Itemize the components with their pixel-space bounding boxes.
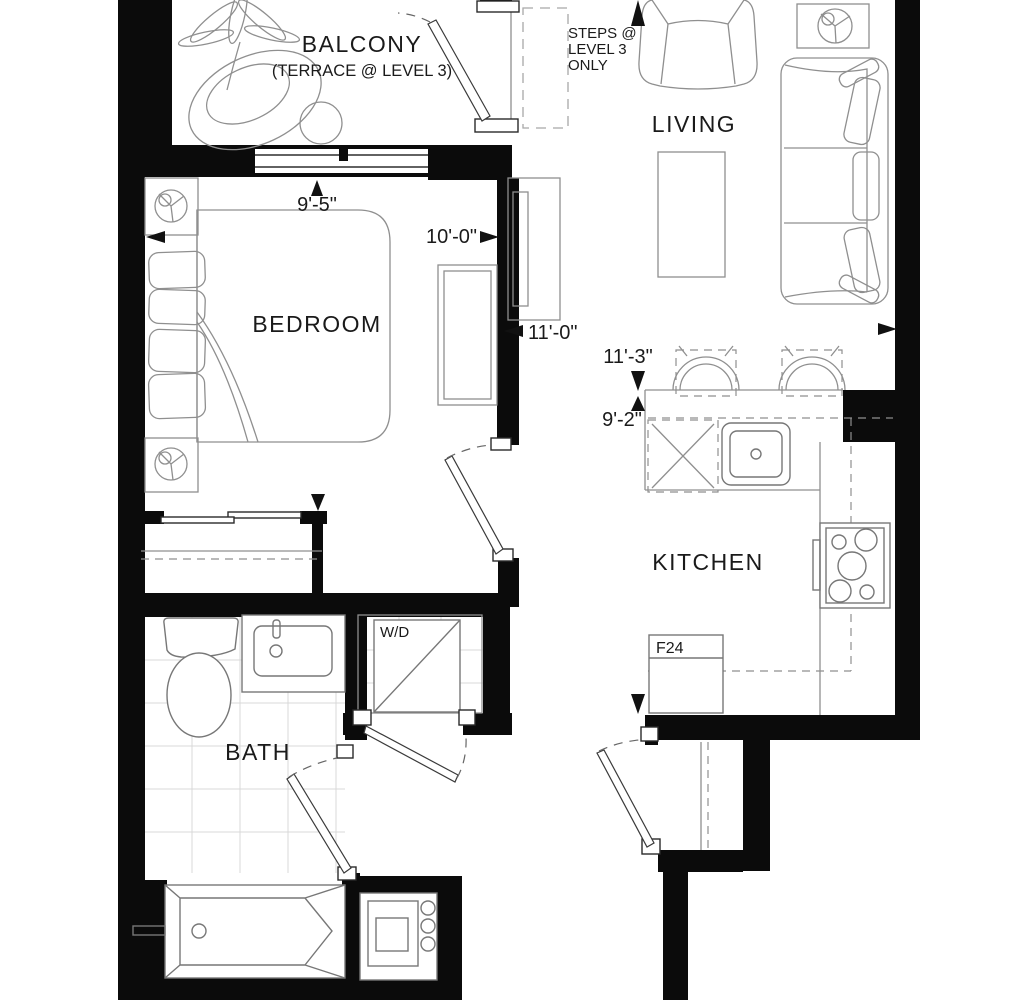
steps-outline — [523, 8, 568, 128]
dresser — [438, 265, 497, 405]
toilet — [164, 618, 238, 737]
balcony-label: BALCONY — [302, 31, 422, 57]
bar-stool-1 — [673, 346, 739, 396]
fridge-label: F24 — [656, 640, 684, 657]
round-table — [300, 102, 342, 144]
kitchen-sink — [722, 423, 790, 485]
balcony-sublabel: (TERRACE @ LEVEL 3) — [272, 62, 452, 80]
balcony-area — [173, 0, 511, 169]
floor-plan: F24 W/D — [0, 0, 1024, 1000]
sofa — [781, 57, 888, 305]
arrow-right-bedroom — [480, 231, 499, 243]
bedroom-door — [445, 438, 513, 561]
floor-plan-page: F24 W/D — [0, 0, 1024, 1000]
dim-bedroom-width: 10'-0" — [426, 226, 477, 248]
washer-dryer-label: W/D — [380, 624, 409, 641]
arrow-down-kitchen-depth — [631, 694, 645, 714]
kitchen-label: KITCHEN — [652, 549, 763, 575]
dim-living-width: 11'-0" — [528, 322, 577, 344]
armchair — [639, 0, 757, 89]
bedroom-window — [255, 149, 428, 173]
doors — [287, 1, 660, 880]
vanity-sink — [242, 615, 345, 692]
coffee-table — [658, 152, 725, 277]
bedroom-label: BEDROOM — [252, 311, 381, 337]
closet-sliding-doors — [141, 512, 322, 559]
wd-door — [353, 710, 475, 782]
coat-closet — [701, 742, 708, 850]
dim-living-depth: 11'-3" — [603, 346, 652, 368]
living-label: LIVING — [652, 111, 736, 137]
arrow-down-closet — [311, 494, 325, 511]
nightstand-bottom — [145, 438, 198, 492]
entry-door — [597, 727, 660, 854]
electrical-panel — [360, 893, 437, 980]
arrow-right-living — [878, 323, 897, 335]
steps-note-line1: STEPS @ — [568, 25, 637, 42]
dim-balcony-width: 9'-5" — [297, 194, 337, 216]
stove — [813, 523, 890, 608]
washer-dryer: W/D — [358, 615, 482, 713]
bath-label: BATH — [225, 739, 291, 765]
nightstand-top — [145, 178, 198, 235]
dim-kitchen-depth: 9'-2" — [602, 409, 642, 431]
arrow-down-living-depth — [631, 371, 645, 391]
living-furniture — [508, 0, 888, 320]
bar-stool-2 — [779, 346, 845, 396]
fridge: F24 — [649, 635, 723, 713]
side-table-lamp — [797, 4, 869, 48]
steps-note-line2: LEVEL 3 — [568, 41, 627, 58]
steps-note-line3: ONLY — [568, 57, 608, 74]
bathtub — [133, 885, 345, 978]
bath-door — [287, 745, 356, 880]
dishwasher — [648, 420, 718, 492]
arrow-left-bedroom — [146, 231, 165, 243]
